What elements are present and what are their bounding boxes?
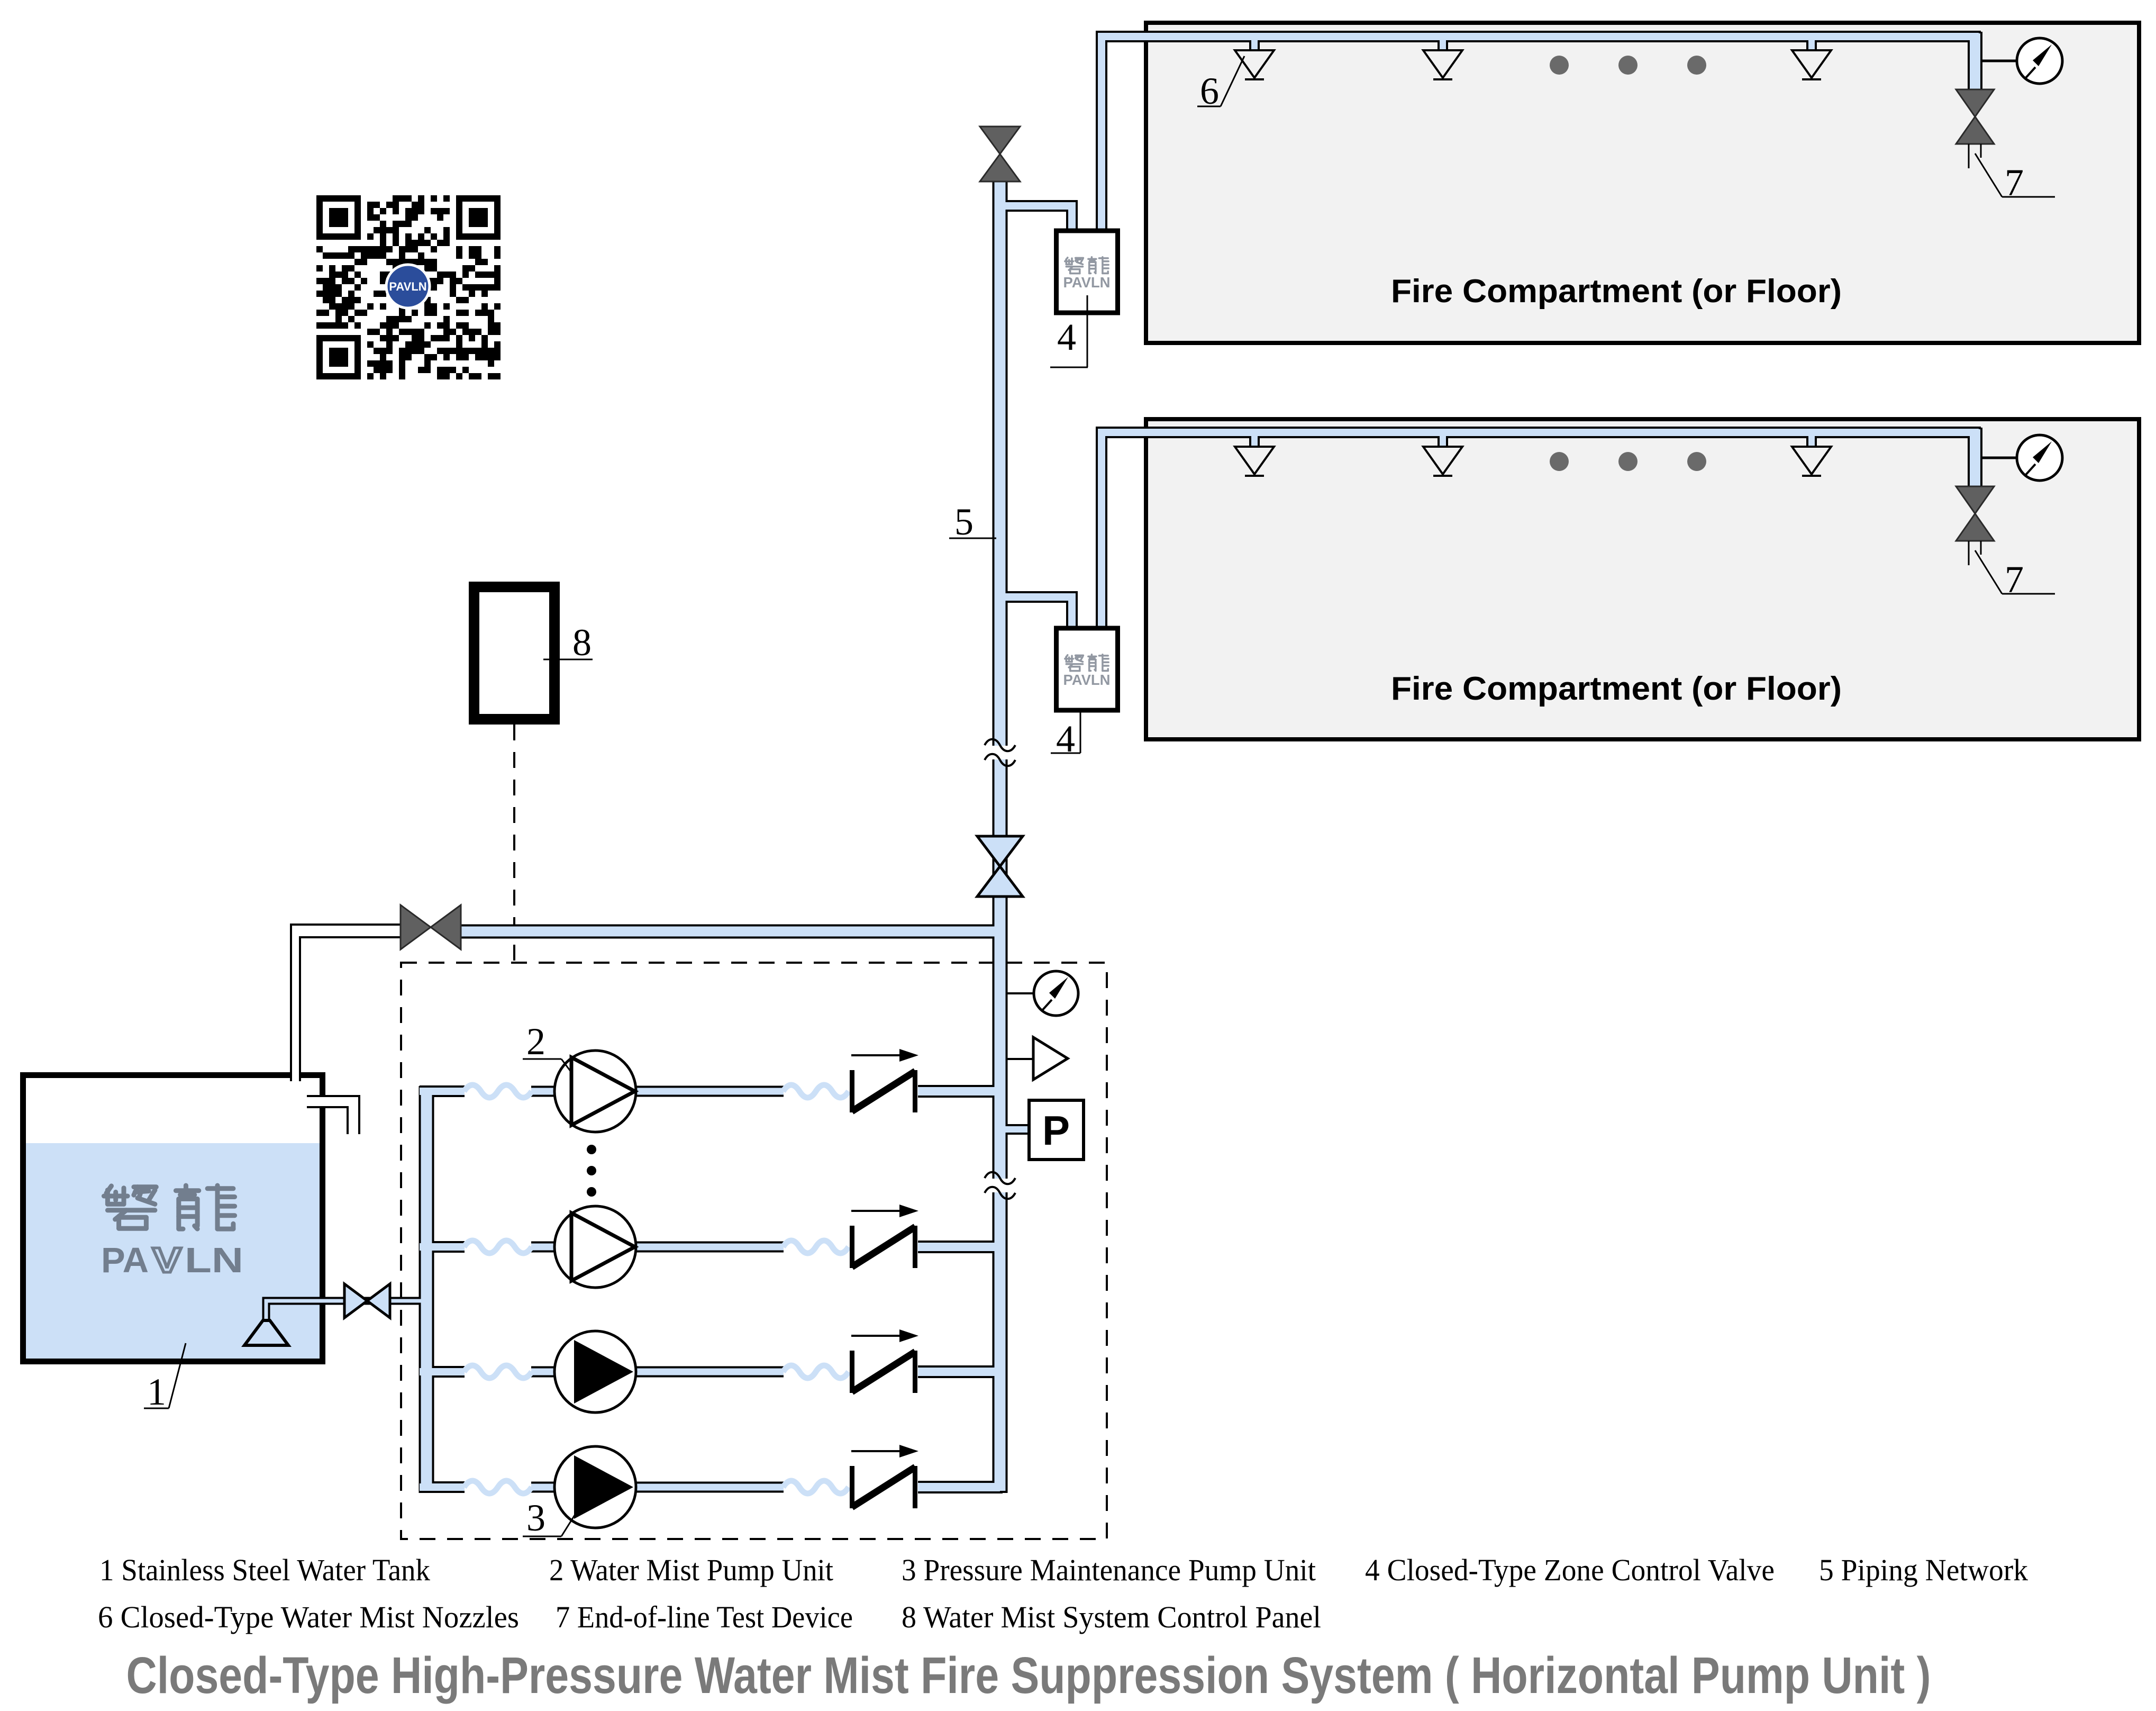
svg-text:2: 2 bbox=[526, 1020, 545, 1063]
svg-text:4 Closed-Type Zone Control Val: 4 Closed-Type Zone Control Valve bbox=[1365, 1553, 1775, 1587]
svg-text:PA: PA bbox=[101, 1241, 149, 1280]
svg-text:7 End-of-line Test Device: 7 End-of-line Test Device bbox=[556, 1600, 853, 1634]
svg-text:Closed-Type High-Pressure Wate: Closed-Type High-Pressure Water Mist Fir… bbox=[126, 1646, 1931, 1704]
svg-text:V: V bbox=[152, 1241, 181, 1280]
svg-text:PAVLN: PAVLN bbox=[1063, 672, 1111, 688]
svg-text:5 Piping Network: 5 Piping Network bbox=[1819, 1553, 2028, 1587]
svg-text:3 Pressure Maintenance Pump Un: 3 Pressure Maintenance Pump Unit bbox=[902, 1553, 1316, 1587]
svg-text:8 Water Mist System Control Pa: 8 Water Mist System Control Panel bbox=[902, 1600, 1321, 1634]
svg-text:8: 8 bbox=[572, 621, 592, 664]
svg-text:PAVLN: PAVLN bbox=[389, 280, 426, 293]
svg-text:P: P bbox=[1042, 1107, 1070, 1154]
svg-text:5: 5 bbox=[954, 501, 974, 543]
svg-text:LN: LN bbox=[185, 1241, 243, 1280]
svg-text:Fire Compartment (or Floor): Fire Compartment (or Floor) bbox=[1391, 671, 1842, 707]
svg-text:2 Water Mist Pump Unit: 2 Water Mist Pump Unit bbox=[549, 1553, 833, 1587]
svg-text:6 Closed-Type Water Mist Nozzl: 6 Closed-Type Water Mist Nozzles bbox=[98, 1600, 519, 1634]
svg-text:PAVLN: PAVLN bbox=[1063, 274, 1111, 291]
svg-text:3: 3 bbox=[526, 1497, 545, 1539]
svg-text:1: 1 bbox=[147, 1371, 166, 1413]
svg-text:4: 4 bbox=[1057, 316, 1076, 358]
svg-text:Fire Compartment (or Floor): Fire Compartment (or Floor) bbox=[1391, 273, 1842, 310]
svg-text:1 Stainless Steel Water Tank: 1 Stainless Steel Water Tank bbox=[99, 1553, 430, 1587]
